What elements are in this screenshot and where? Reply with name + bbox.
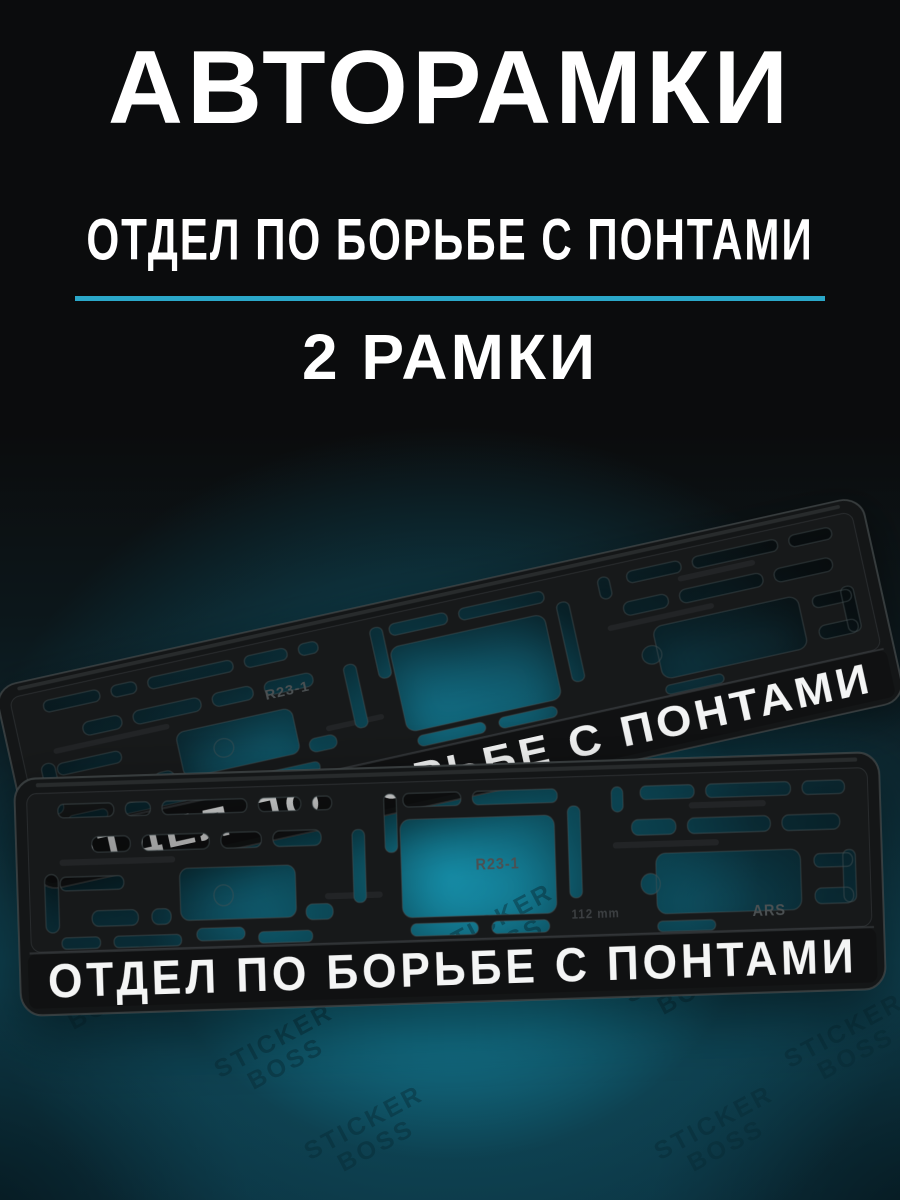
divider-line bbox=[75, 296, 825, 301]
watermark: STICKER BOSS bbox=[210, 999, 350, 1107]
watermark: STICKER BOSS bbox=[300, 1081, 440, 1189]
product-card: АВТОРАМКИ ОТДЕЛ ПО БОРЬБЕ С ПОНТАМИ 2 РА… bbox=[0, 0, 900, 1200]
license-plate-frame-front: R23-1 112 mm ARS ОТДЕЛ ПО БОРЬБЕ С ПОНТА… bbox=[12, 750, 887, 1017]
product-subtitle: ОТДЕЛ ПО БОРЬБЕ С ПОНТАМИ bbox=[27, 206, 873, 274]
frame-marking-size: 112 mm bbox=[571, 906, 620, 922]
page-title: АВТОРАМКИ bbox=[0, 34, 900, 143]
watermark: STICKER BOSS bbox=[780, 989, 900, 1097]
frame-marking-brand: ARS bbox=[752, 902, 786, 921]
frame-marking-model: R23-1 bbox=[475, 855, 520, 874]
product-photo: STICKER BOSS STICKER BOSS STICKER BOSS S… bbox=[0, 380, 900, 1200]
watermark: STICKER BOSS bbox=[650, 1081, 790, 1189]
license-plate-frame-front-graphic: R23-1 112 mm ARS ОТДЕЛ ПО БОРЬБЕ С ПОНТА… bbox=[12, 750, 887, 1017]
